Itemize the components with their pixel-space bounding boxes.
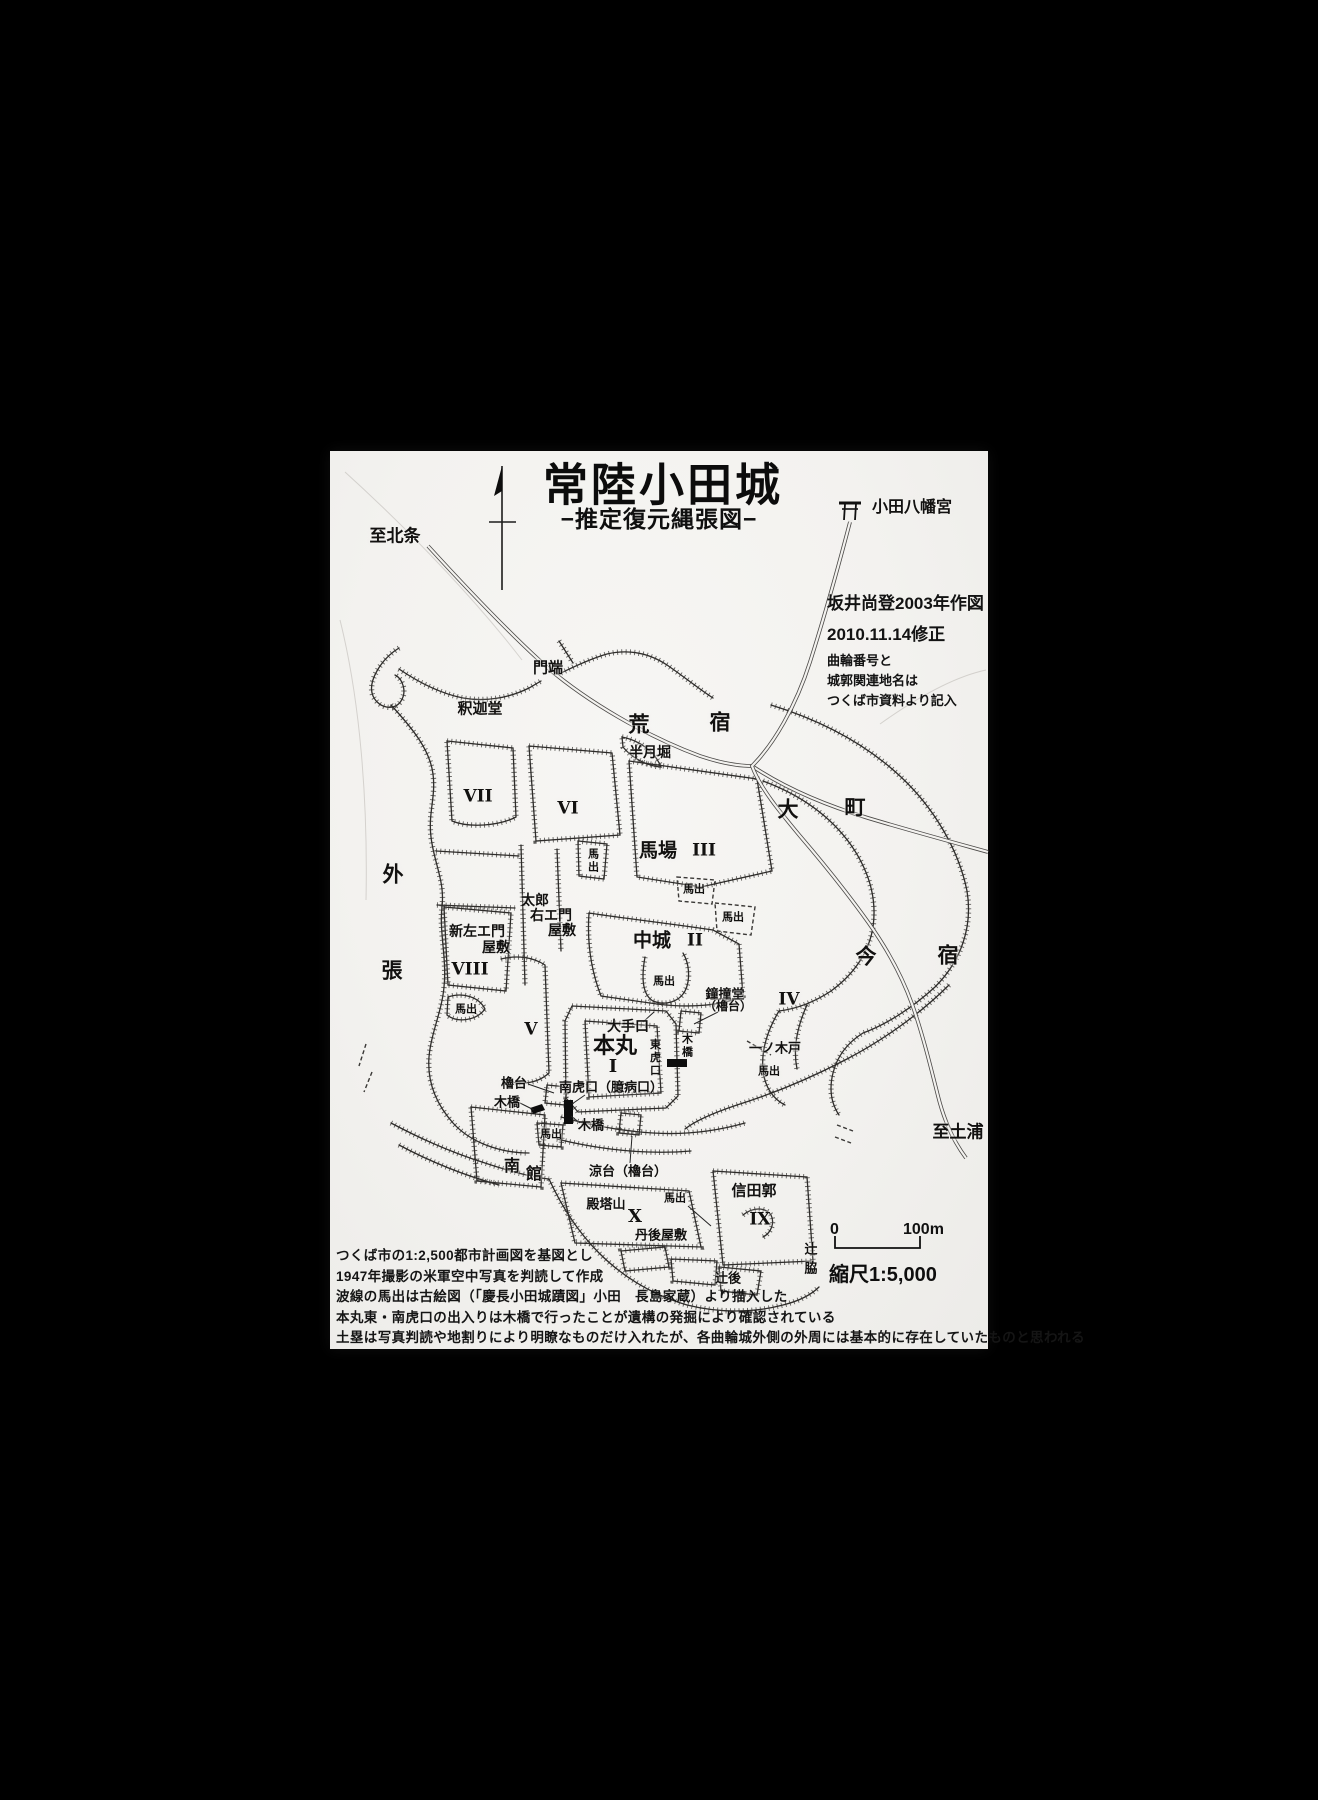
map-label-dentozan: 殿塔山	[586, 1198, 625, 1211]
map-label-kuruwa-10: X	[628, 1208, 642, 1226]
attribution-revision: 2010.11.14修正	[827, 620, 945, 645]
map-label-nakajo: 中城	[633, 932, 671, 951]
map-paper	[330, 451, 988, 1349]
map-label-yakata: 館	[526, 1167, 542, 1183]
map-note-line-2: 1947年撮影の米軍空中写真を判読して作成	[336, 1265, 604, 1285]
map-label-shidakaku: 信田郭	[731, 1184, 776, 1199]
black-background: 常陸小田城 −推定復元縄張図− 坂井尚登2003年作図 2010.11.14修正…	[0, 0, 1318, 1800]
map-label-kuruwa-3: III	[692, 843, 716, 860]
map-label-oda-hachimangu: 小田八幡宮	[872, 500, 952, 516]
attribution-author: 坂井尚登2003年作図	[827, 589, 984, 614]
scale-ratio-label: 縮尺1:5,000	[829, 1258, 937, 1287]
attribution-source-note-3: つくば市資料より記入	[827, 690, 957, 709]
map-label-suzumidai: 涼台（櫓台）	[589, 1165, 667, 1178]
map-label-yashiki-taro: 屋敷	[548, 923, 576, 937]
map-label-monbata: 門端	[533, 661, 563, 676]
map-label-waki: 脇	[804, 1262, 817, 1275]
map-label-kuruwa-7: VII	[463, 789, 492, 806]
map-note-line-3: 波線の馬出は古絵図（「慶長小田城蹟図」小田 長島家蔵）より描入した	[336, 1285, 788, 1305]
map-label-to-tsuchiura: 至土浦	[933, 1124, 984, 1141]
map-label-umadashi-4: 馬出	[455, 1005, 477, 1016]
map-label-hangetsubori: 半月堀	[629, 745, 671, 759]
map-label-tsujigo: 辻後	[715, 1272, 741, 1285]
map-label-oteguchi: 大手口	[607, 1019, 649, 1033]
attribution-source-note-1: 曲輪番号と	[827, 650, 892, 669]
map-label-tango-yashiki: 丹後屋敷	[635, 1229, 687, 1242]
map-label-shodo-yagura: （櫓台）	[704, 1000, 752, 1012]
map-label-umadashi-5: 馬出	[653, 977, 675, 988]
map-label-shuku-ima: 宿	[938, 946, 959, 967]
map-label-minami-koguchi: 南虎口（臆病口）	[559, 1081, 663, 1094]
map-label-ima: 今	[856, 947, 877, 968]
map-label-kuruwa-1: I	[609, 1058, 617, 1076]
map-label-shinzaemon: 新左エ門	[449, 924, 505, 938]
map-label-uemon: 右エ門	[530, 908, 572, 922]
map-label-yashiki-shin: 屋敷	[482, 940, 510, 954]
map-label-hari: 張	[382, 961, 403, 982]
map-label-kuruwa-2: II	[687, 933, 703, 950]
map-label-kibashi-higashi: 木橋	[681, 1033, 692, 1059]
map-label-yagura-sw: 櫓台	[501, 1077, 527, 1090]
map-label-kibashi-s: 木橋	[578, 1119, 604, 1132]
map-label-taro: 太郎	[521, 893, 549, 907]
map-label-to-hojo: 至北条	[370, 528, 421, 545]
map-label-kuruwa-6: VI	[557, 801, 578, 818]
map-label-shakado: 釈迦堂	[457, 702, 502, 717]
map-label-kibashi-w: 木橋	[494, 1096, 520, 1109]
map-label-kuruwa-8: VIII	[451, 962, 488, 979]
scale-hundred-label: 100m	[903, 1221, 944, 1239]
map-label-minami: 南	[504, 1159, 520, 1175]
map-label-umadashi-6: 馬出	[758, 1067, 780, 1078]
map-label-soto: 外	[383, 865, 404, 886]
map-label-umadashi-3: 馬出	[722, 913, 744, 924]
map-label-kuruwa-4: IV	[778, 992, 799, 1009]
map-label-dai: 大	[778, 800, 799, 821]
map-label-umadashi-7: 馬出	[540, 1130, 562, 1141]
scale-zero-label: 0	[830, 1221, 839, 1239]
map-label-shuku-ara: 宿	[710, 713, 731, 734]
map-label-tsuji: 辻	[804, 1243, 817, 1256]
map-note-line-1: つくば市の1:2,500都市計画図を基図とし	[336, 1244, 593, 1264]
map-label-kuruwa-5: V	[524, 1022, 537, 1039]
map-label-kuruwa-9: IX	[749, 1212, 770, 1229]
map-label-ara: 荒	[629, 715, 650, 736]
map-label-baba: 馬場	[639, 842, 677, 861]
map-label-umadashi-1: 馬出	[587, 848, 598, 874]
map-label-honmaru: 本丸	[593, 1035, 637, 1057]
map-note-line-5: 土塁は写真判読や地割りにより明瞭なものだけ入れたが、各曲輪城外側の外周には基本的…	[336, 1326, 1085, 1346]
map-label-ichinokido: 一ノ木戸	[749, 1042, 801, 1055]
attribution-source-note-2: 城郭関連地名は	[827, 670, 918, 689]
page-subtitle: −推定復元縄張図−	[561, 500, 758, 534]
map-label-umadashi-8: 馬出	[664, 1194, 686, 1205]
map-label-machi: 町	[845, 798, 866, 819]
map-note-line-4: 本丸東・南虎口の出入りは木橋で行ったことが遺構の発掘により確認されている	[336, 1306, 836, 1326]
map-label-higashi-koguchi: 東虎口	[649, 1039, 660, 1078]
map-label-umadashi-2: 馬出	[683, 885, 705, 896]
